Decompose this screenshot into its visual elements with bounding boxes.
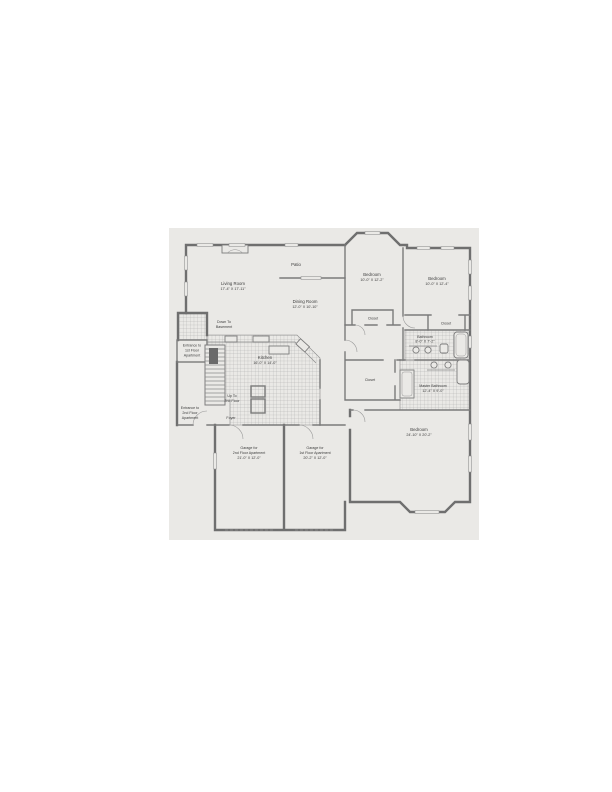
sink bbox=[445, 362, 451, 368]
entrance-2nd-line1: Entrance to bbox=[181, 406, 199, 410]
garage-1st-dims: 20'-2" X 12'-0" bbox=[303, 456, 327, 460]
master-bathroom-dims: 12'-4" X 9'-0" bbox=[422, 389, 444, 393]
down-to-basement-line1: Down To bbox=[217, 320, 231, 324]
bathtub bbox=[457, 360, 469, 384]
closet-center-label: Closet bbox=[368, 317, 378, 321]
garage-1st-line1: Garage for bbox=[306, 446, 324, 450]
garage-2nd-line2: 2nd Floor Apartment bbox=[233, 451, 266, 455]
entrance-1st-line1: Entrance to bbox=[183, 344, 201, 348]
sink bbox=[431, 362, 437, 368]
kitchen-label: Kitchen bbox=[258, 355, 273, 360]
toilet bbox=[440, 344, 448, 353]
entrance-1st-line3: Apartment bbox=[184, 354, 201, 358]
kitchen-island bbox=[269, 346, 289, 354]
living-room-dims: 17'-4" X 17'-11" bbox=[220, 287, 246, 291]
refrigerator bbox=[209, 348, 218, 364]
bedroom-center-label: Bedroom bbox=[363, 272, 381, 277]
garage-2nd-dims: 21'-0" X 12'-0" bbox=[237, 456, 261, 460]
bedroom-right-label: Bedroom bbox=[428, 276, 446, 281]
bedroom-master-dims: 24'-10" X 20'-2" bbox=[406, 433, 432, 437]
sink bbox=[413, 347, 419, 353]
garage-1st-line2: 1st Floor Apartment bbox=[299, 451, 330, 455]
bedroom-center-dims: 10'-0" X 12'-2" bbox=[360, 278, 384, 282]
dining-room-label: Dining Room bbox=[293, 299, 318, 304]
master-bathroom-label: Master Bathroom bbox=[419, 384, 447, 388]
up-to-2nd-line2: 2nd Floor bbox=[224, 399, 240, 403]
bedroom-master-label: Bedroom bbox=[410, 427, 428, 432]
sink bbox=[425, 347, 431, 353]
bedroom-right-dims: 10'-0" X 12'-4" bbox=[425, 282, 449, 286]
entrance-2nd-line2: 2nd Floor bbox=[182, 411, 198, 415]
closet-right-label: Closet bbox=[441, 322, 451, 326]
foyer-label: Foyer bbox=[226, 416, 236, 420]
living-room-label: Living Room bbox=[221, 281, 245, 286]
up-to-2nd-line1: Up To bbox=[227, 394, 236, 398]
patio-label: Patio bbox=[291, 262, 301, 267]
floor-plan-drawing: Living Room 17'-4" X 17'-11" Patio Dinin… bbox=[169, 228, 479, 540]
garage-2nd-line1: Garage for bbox=[240, 446, 258, 450]
closet-hall-label: Closet bbox=[365, 378, 375, 382]
basement-stair-floor bbox=[178, 313, 207, 340]
bathroom-dims: 8'-0" X 7'-2" bbox=[415, 340, 435, 344]
kitchen-appliance bbox=[225, 336, 237, 342]
bathroom-label: Bathroom bbox=[417, 335, 433, 339]
entrance-2nd-line3: Apartment bbox=[182, 416, 199, 420]
kitchen-dims: 16'-0" X 14'-0" bbox=[253, 361, 277, 365]
floor-plan-paper: Living Room 17'-4" X 17'-11" Patio Dinin… bbox=[169, 228, 479, 540]
dining-room-dims: 12'-0" X 10'-10" bbox=[292, 305, 318, 309]
entrance-1st-line2: 1st Floor bbox=[185, 349, 200, 353]
kitchen-sink bbox=[253, 336, 269, 342]
down-to-basement-line2: Basement bbox=[216, 325, 232, 329]
